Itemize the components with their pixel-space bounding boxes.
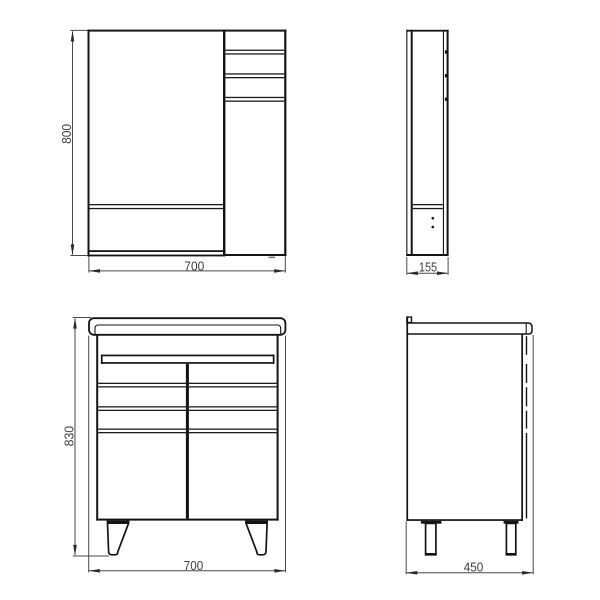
svg-text:700: 700: [184, 259, 204, 274]
svg-text:450: 450: [464, 559, 484, 574]
svg-text:800: 800: [59, 124, 74, 144]
svg-text:830: 830: [61, 426, 76, 447]
svg-text:155: 155: [419, 259, 437, 274]
svg-text:700: 700: [184, 558, 204, 573]
